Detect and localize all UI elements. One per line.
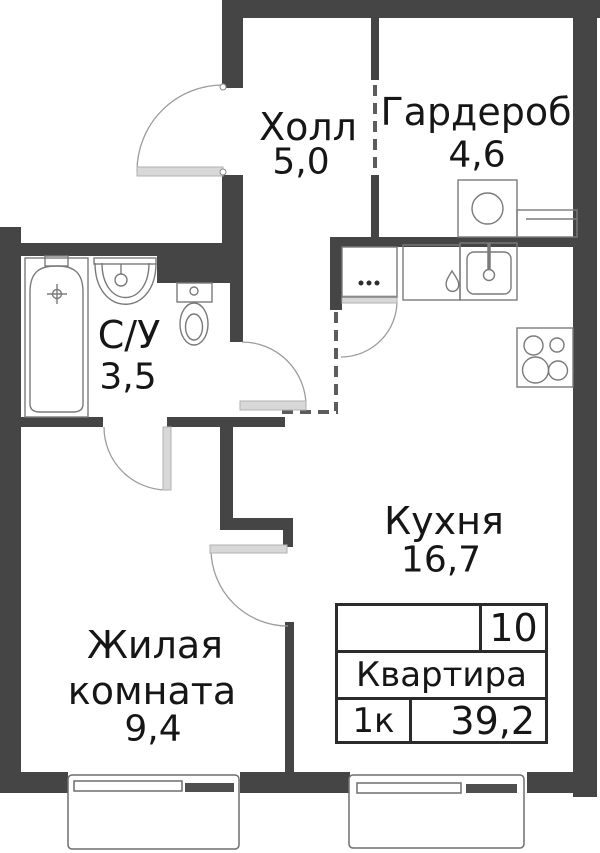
living-room-door <box>210 545 288 626</box>
info-table-row-label: Квартира <box>338 650 545 697</box>
apartment-number: 10 <box>479 606 545 650</box>
entrance-door-hinge-icon <box>220 84 226 90</box>
wardrobe-counter <box>517 210 577 237</box>
kitchen-area: 16,7 <box>401 540 481 581</box>
kitchen-window <box>357 783 517 793</box>
bathroom-door <box>240 342 306 410</box>
living-label-line1: Жилая <box>87 623 223 667</box>
entrance-door-hinge-icon <box>220 169 226 175</box>
entrance-door-arc <box>137 85 223 171</box>
entrance-door <box>137 84 226 176</box>
hall-area: 5,0 <box>272 142 329 183</box>
entrance-door-leaf <box>137 167 223 176</box>
bath-sink-icon <box>94 258 156 304</box>
kitchen-door <box>341 296 397 357</box>
apartment-label: Квартира <box>338 653 545 697</box>
kitchen-cabinet-icon <box>342 247 397 297</box>
info-table-row-area: 1к 39,2 <box>338 697 545 741</box>
bathroom-lower-door <box>104 427 171 490</box>
wardrobe-label: Гардероб <box>380 90 571 134</box>
bathroom-label: С/У <box>98 313 161 357</box>
stove-icon <box>517 328 573 387</box>
kitchen-label: Кухня <box>384 499 504 543</box>
bathroom-door-leaf <box>240 401 306 410</box>
rooms-count: 1к <box>338 700 409 741</box>
kitchen-window-sash <box>466 784 517 793</box>
living-room-door-arc <box>211 549 288 626</box>
bathroom-area: 3,5 <box>99 357 156 398</box>
bathroom-lower-door-leaf <box>163 427 171 490</box>
toilet-icon <box>177 283 212 345</box>
floor-plan: Холл 5,0 Гардероб 4,6 С/У 3,5 Кухня 16,7… <box>0 0 600 853</box>
info-table-empty-cell <box>338 606 479 650</box>
living-area: 9,4 <box>124 709 181 750</box>
info-table: 10 Квартира 1к 39,2 <box>335 603 548 744</box>
living-label-line2: комната <box>68 669 236 713</box>
living-room-door-leaf <box>210 545 287 553</box>
kitchen-door-arc <box>341 301 397 357</box>
info-table-row-number: 10 <box>338 606 545 650</box>
dishwasher-icon <box>403 245 460 300</box>
bathroom-lower-door-arc <box>104 427 167 490</box>
kitchen-sink-icon <box>460 243 517 300</box>
bathroom-door-arc <box>242 342 306 406</box>
wardrobe-area: 4,6 <box>448 135 505 176</box>
bathtub-icon <box>25 256 88 417</box>
living-room-window-sash <box>185 783 234 792</box>
washing-machine-icon <box>458 180 517 237</box>
total-area: 39,2 <box>409 700 545 741</box>
